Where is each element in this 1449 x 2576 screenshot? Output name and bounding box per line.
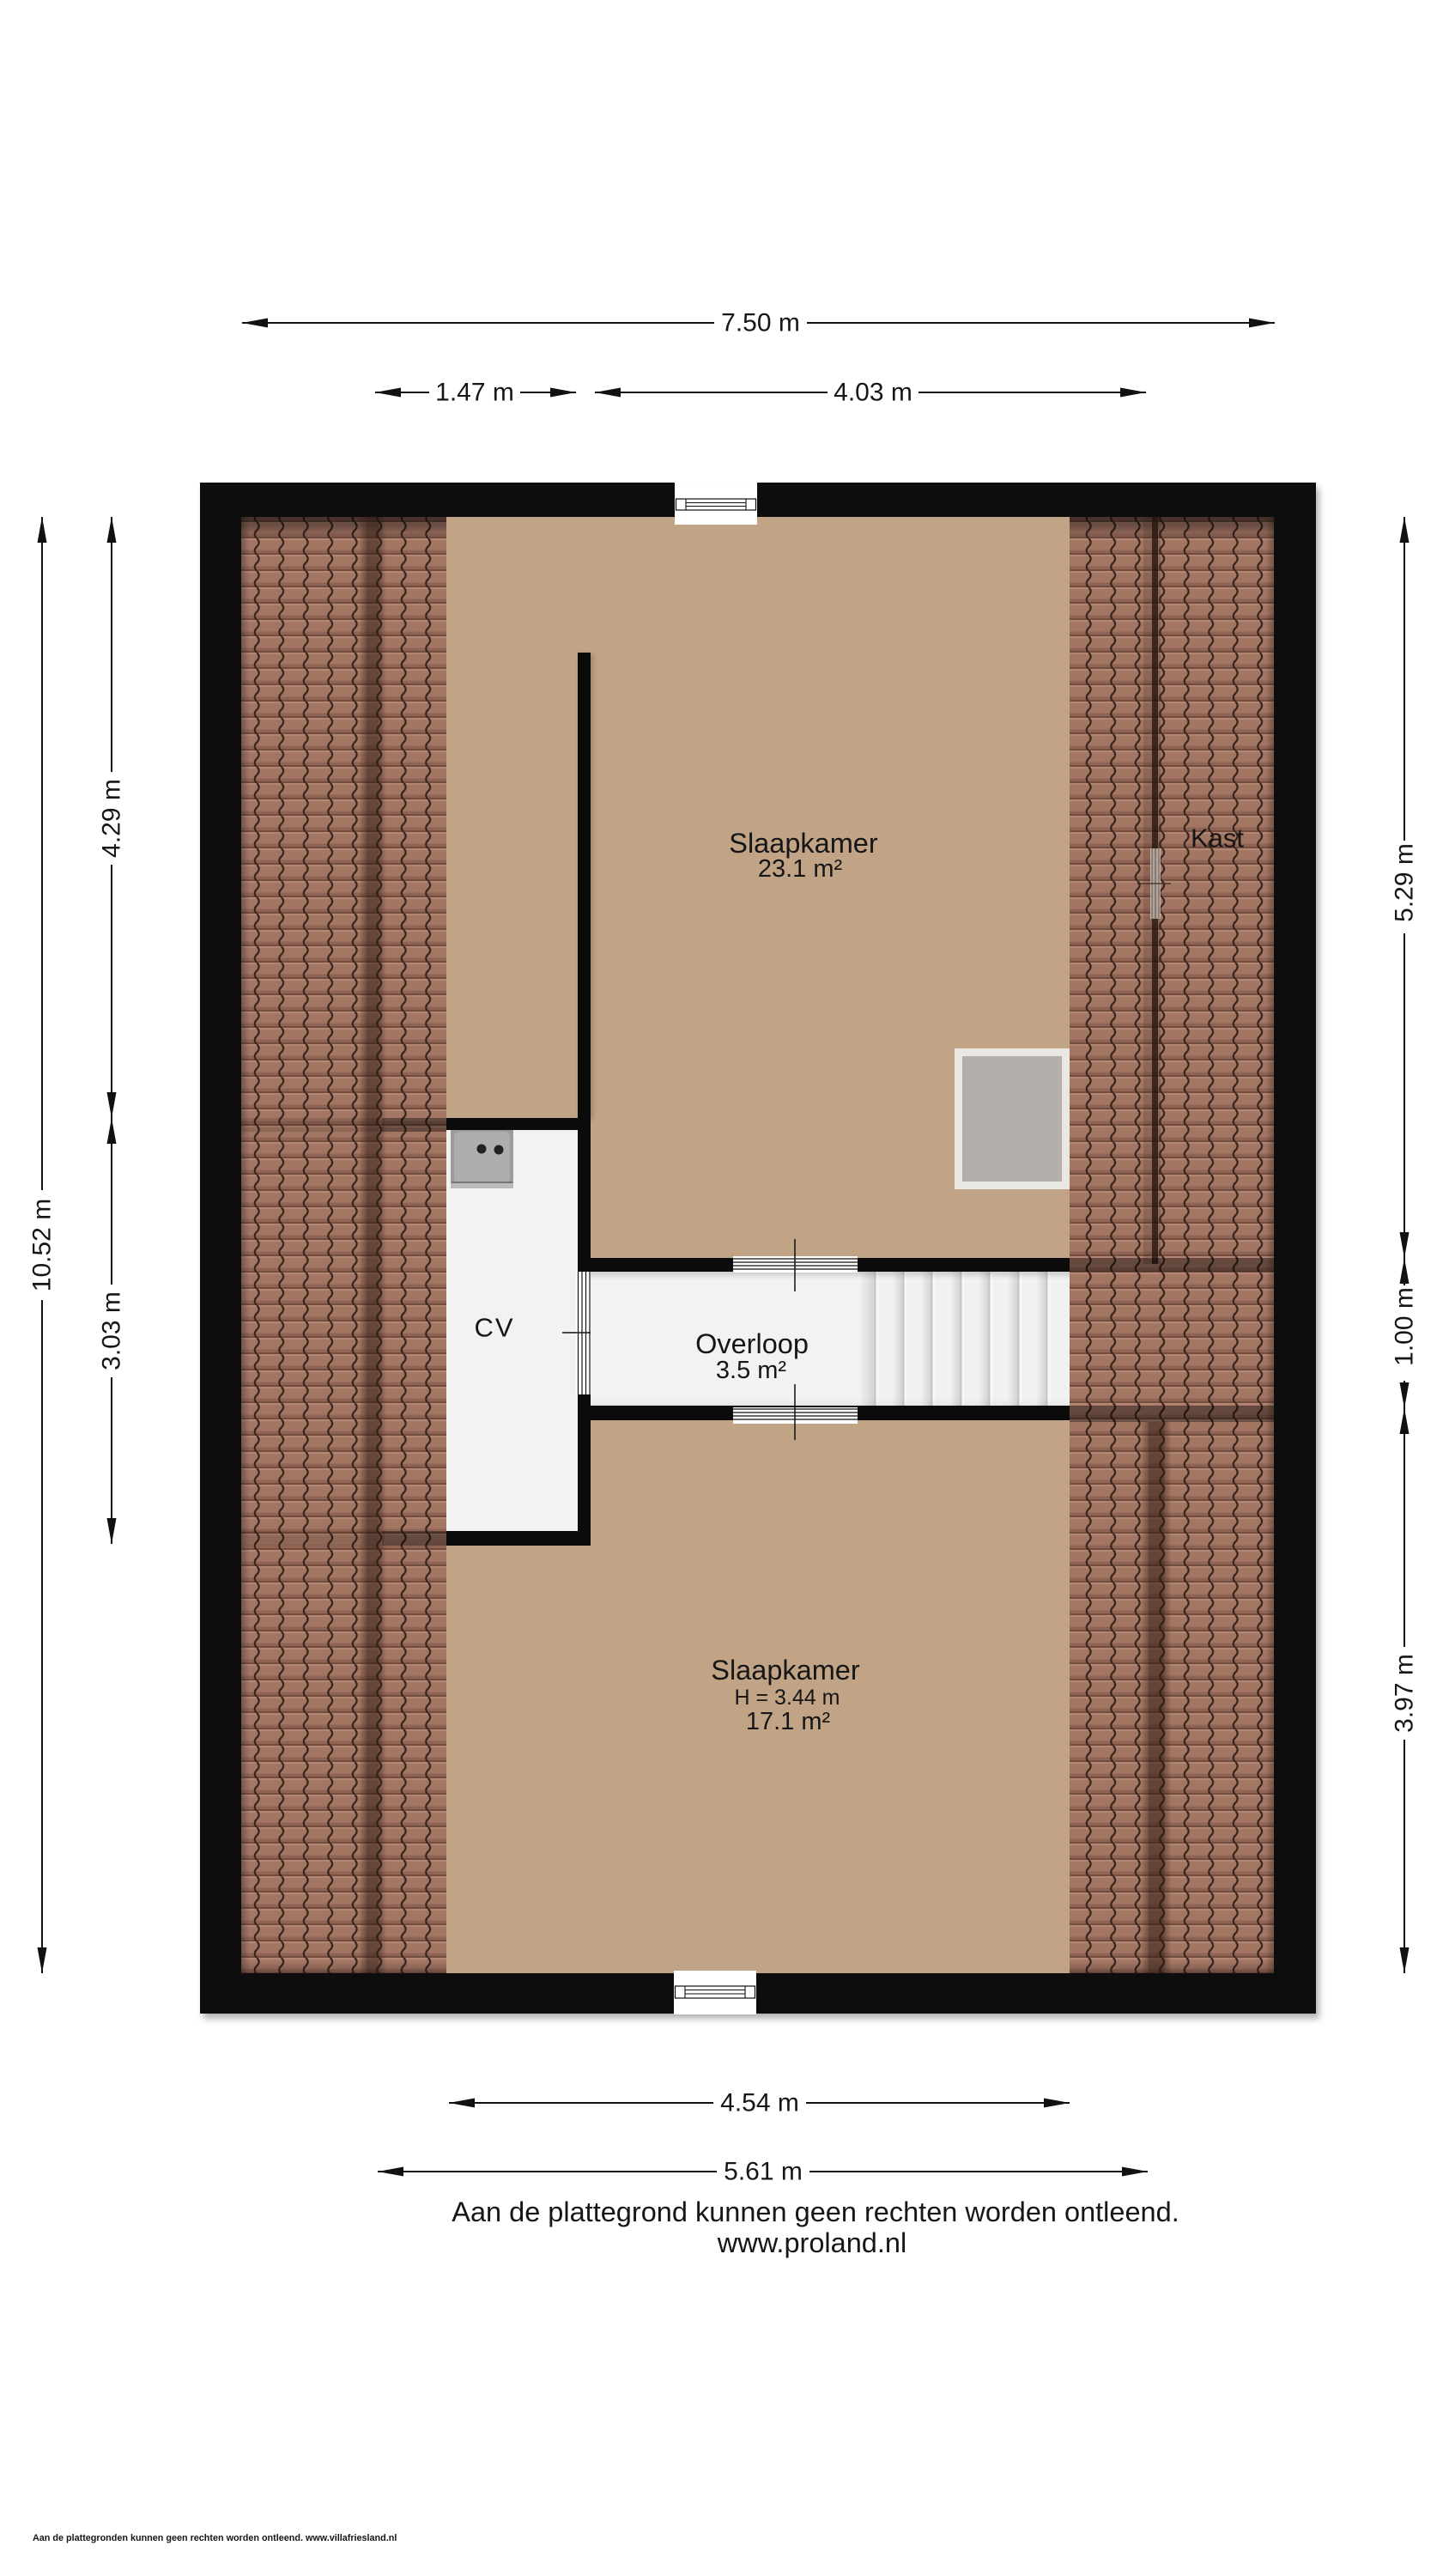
svg-text:Kast: Kast <box>1191 823 1244 854</box>
svg-text:5.61 m: 5.61 m <box>724 2158 803 2186</box>
svg-text:3.03 m: 3.03 m <box>98 1291 126 1370</box>
svg-text:7.50 m: 7.50 m <box>721 309 800 337</box>
svg-text:www.proland.nl: www.proland.nl <box>717 2227 906 2258</box>
svg-text:23.1 m²: 23.1 m² <box>758 855 843 883</box>
svg-text:4.03 m: 4.03 m <box>834 379 912 407</box>
svg-text:3.5 m²: 3.5 m² <box>716 1357 787 1384</box>
svg-text:Slaapkamer: Slaapkamer <box>711 1655 860 1686</box>
svg-text:10.52 m: 10.52 m <box>28 1199 57 1291</box>
svg-text:1.00 m: 1.00 m <box>1391 1287 1419 1366</box>
svg-text:Slaapkamer: Slaapkamer <box>729 828 878 859</box>
svg-text:H = 3.44 m: H = 3.44 m <box>735 1686 840 1710</box>
svg-text:Aan de plattegronden kunnen ge: Aan de plattegronden kunnen geen rechten… <box>33 2533 397 2543</box>
svg-text:3.97 m: 3.97 m <box>1391 1654 1419 1733</box>
svg-text:17.1 m²: 17.1 m² <box>746 1708 831 1735</box>
svg-text:Aan de plattegrond kunnen geen: Aan de plattegrond kunnen geen rechten w… <box>452 2196 1179 2227</box>
svg-text:CV: CV <box>474 1313 514 1343</box>
svg-text:5.29 m: 5.29 m <box>1391 843 1419 922</box>
svg-text:4.29 m: 4.29 m <box>98 779 126 858</box>
svg-text:1.47 m: 1.47 m <box>435 379 514 407</box>
svg-text:4.54 m: 4.54 m <box>720 2089 799 2117</box>
svg-text:Overloop: Overloop <box>695 1328 809 1359</box>
